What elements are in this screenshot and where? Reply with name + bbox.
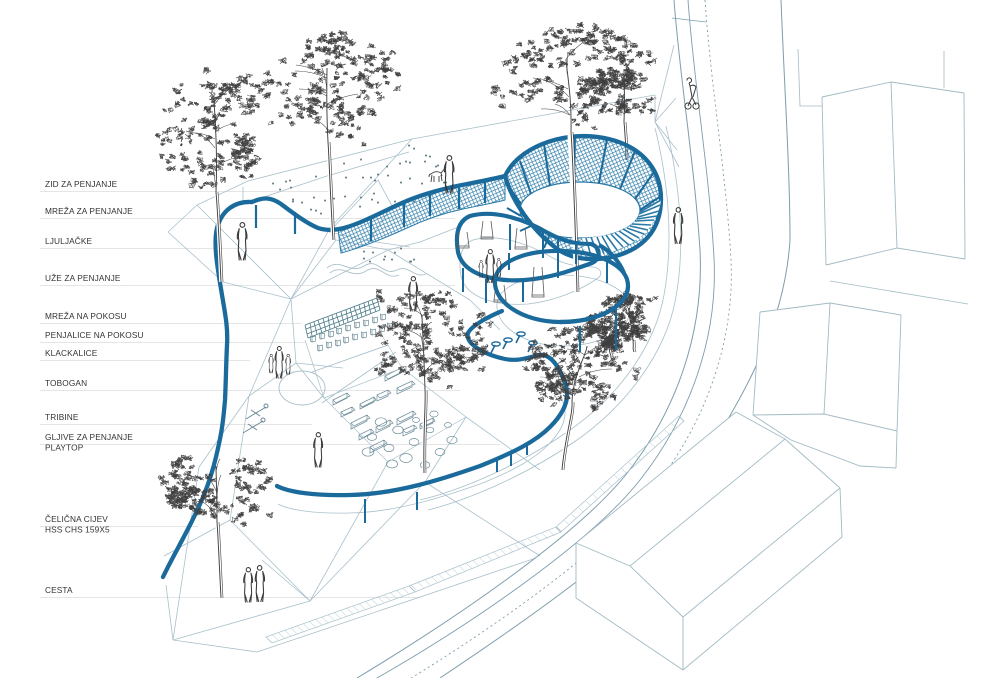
svg-text:TOBOGAN: TOBOGAN [45,378,87,388]
svg-text:LJULJAČKE: LJULJAČKE [45,236,93,246]
svg-text:MREŽA ZA PENJANJE: MREŽA ZA PENJANJE [45,206,133,216]
svg-text:TRIBINE: TRIBINE [45,412,79,422]
svg-text:MREŽA NA POKOSU: MREŽA NA POKOSU [45,311,127,321]
svg-text:PENJALICE NA POKOSU: PENJALICE NA POKOSU [45,330,144,340]
svg-text:UŽE ZA PENJANJE: UŽE ZA PENJANJE [45,273,121,283]
svg-text:KLACKALICE: KLACKALICE [45,348,98,358]
svg-text:ZID ZA PENJANJE: ZID ZA PENJANJE [45,179,118,189]
svg-text:ČELIČNA CIJEV: ČELIČNA CIJEV [45,514,108,524]
svg-text:CESTA: CESTA [45,585,73,595]
svg-text:HSS CHS 159X5: HSS CHS 159X5 [45,525,110,535]
svg-text:GLJIVE ZA PENJANJE: GLJIVE ZA PENJANJE [45,432,133,442]
svg-text:PLAYTOP: PLAYTOP [45,443,84,453]
